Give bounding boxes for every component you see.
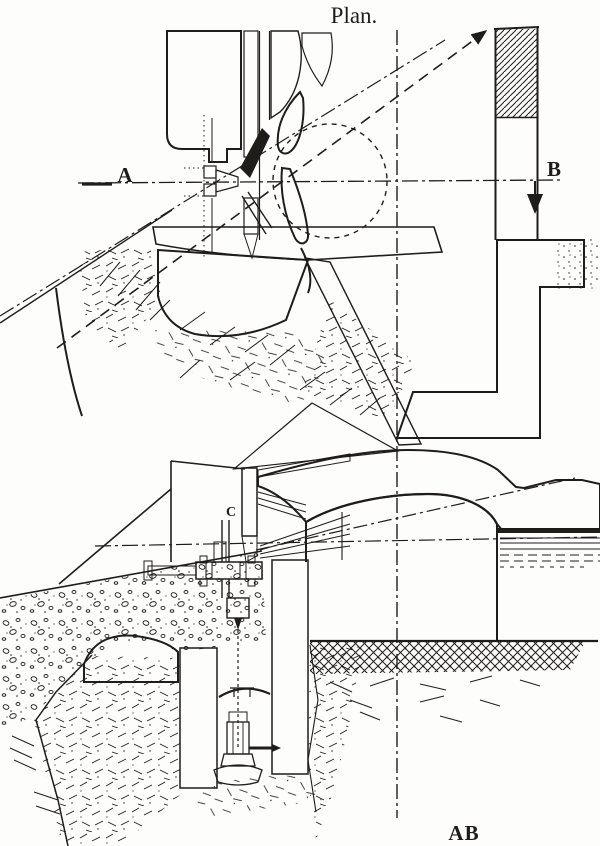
plan-upper-masonry <box>167 31 241 162</box>
rock-right <box>308 645 362 840</box>
section-diagonal-line <box>256 478 575 550</box>
plan-masonry-sliver <box>271 31 332 118</box>
turbine-guide-vanes <box>240 92 310 293</box>
turbine-installation-drawing: Plan. A B C AB <box>0 0 600 846</box>
step-bearing <box>214 712 281 785</box>
title-plan: Plan. <box>331 3 378 28</box>
headrace-channel <box>494 27 539 240</box>
plan-view <box>0 27 598 445</box>
label-point-b: B <box>547 157 561 181</box>
label-point-c: C <box>226 505 236 520</box>
ab-centerline <box>78 180 560 184</box>
section-view <box>0 403 600 846</box>
label-section-ab: AB <box>448 821 479 845</box>
tailrace-wall <box>397 237 598 438</box>
masonry-arch <box>258 450 600 641</box>
nozzle-mechanism <box>184 115 238 258</box>
plan-rough-ground <box>78 246 415 420</box>
tailwater-lines <box>498 528 600 567</box>
label-point-a: A <box>117 163 133 187</box>
engraving-page: Plan. A B C AB <box>0 0 600 846</box>
